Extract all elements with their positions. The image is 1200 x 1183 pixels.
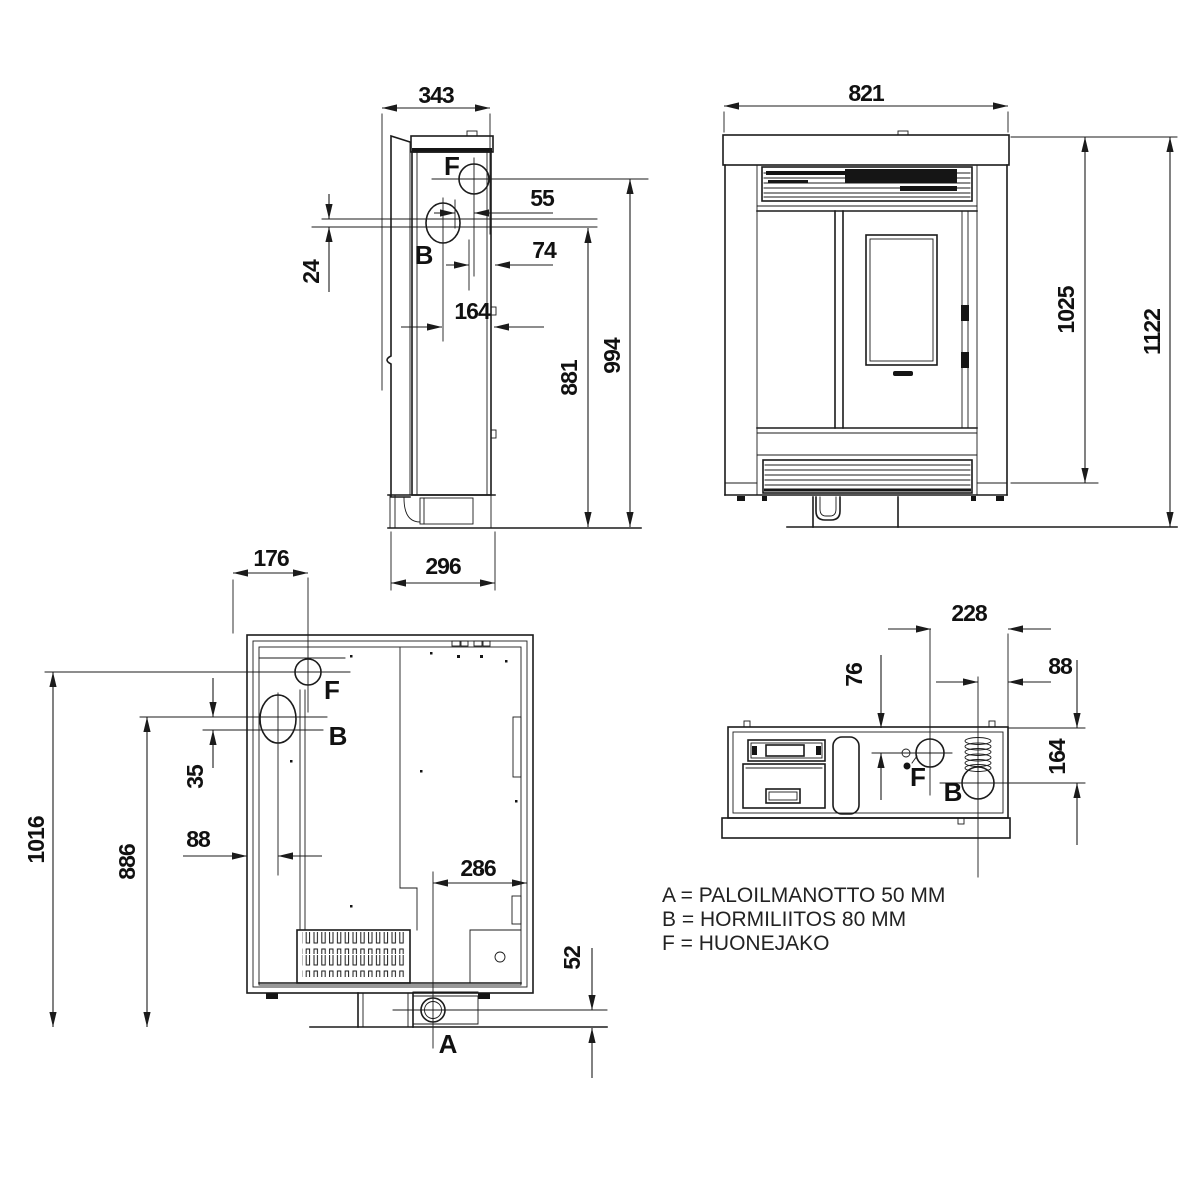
dim-994-label: 994 bbox=[599, 337, 625, 374]
port-f-label-top: F bbox=[910, 762, 926, 792]
port-a-label-section: A bbox=[439, 1029, 458, 1059]
dim-24-label: 24 bbox=[298, 259, 324, 284]
canvas-background bbox=[0, 0, 1200, 1183]
port-b-label: B bbox=[415, 240, 434, 270]
dim-35-label: 35 bbox=[182, 764, 208, 789]
dim-1016-label: 1016 bbox=[23, 816, 49, 863]
dim-296-label: 296 bbox=[425, 553, 461, 579]
dim-228-label: 228 bbox=[951, 600, 988, 626]
legend-line-a: A = PALOILMANOTTO 50 MM bbox=[662, 884, 945, 907]
door-handle bbox=[961, 305, 969, 321]
dim-74-label: 74 bbox=[532, 237, 557, 263]
dimension-drawing-page: F B 343 55 74 24 164 bbox=[0, 0, 1200, 1183]
dim-286-label: 286 bbox=[460, 855, 496, 881]
stove-dimension-drawing: F B 343 55 74 24 164 bbox=[0, 0, 1200, 1183]
dim-88-section-label: 88 bbox=[186, 826, 211, 852]
dim-1122-label: 1122 bbox=[1139, 309, 1165, 355]
dim-886-label: 886 bbox=[114, 844, 140, 880]
dim-343-label: 343 bbox=[418, 82, 454, 108]
dim-52-label: 52 bbox=[559, 946, 585, 970]
dim-55-label: 55 bbox=[530, 185, 555, 211]
dim-88-top-label: 88 bbox=[1048, 653, 1073, 679]
brand-logo-mark bbox=[893, 371, 913, 376]
dim-1025-label: 1025 bbox=[1053, 285, 1079, 333]
dim-821-label: 821 bbox=[848, 80, 885, 106]
dim-176-label: 176 bbox=[253, 545, 289, 571]
dim-76-label: 76 bbox=[841, 663, 867, 687]
port-f-label: F bbox=[444, 151, 460, 181]
dim-164-top-label: 164 bbox=[1044, 738, 1070, 775]
legend-line-b: B = HORMILIITOS 80 MM bbox=[662, 908, 906, 931]
legend-line-f: F = HUONEJAKO bbox=[662, 932, 829, 955]
port-b-label-top: B bbox=[944, 777, 963, 807]
port-f-label-section: F bbox=[324, 675, 340, 705]
port-b-label-section: B bbox=[329, 721, 348, 751]
dim-164-side-label: 164 bbox=[454, 298, 491, 324]
dim-881-label: 881 bbox=[556, 359, 582, 396]
